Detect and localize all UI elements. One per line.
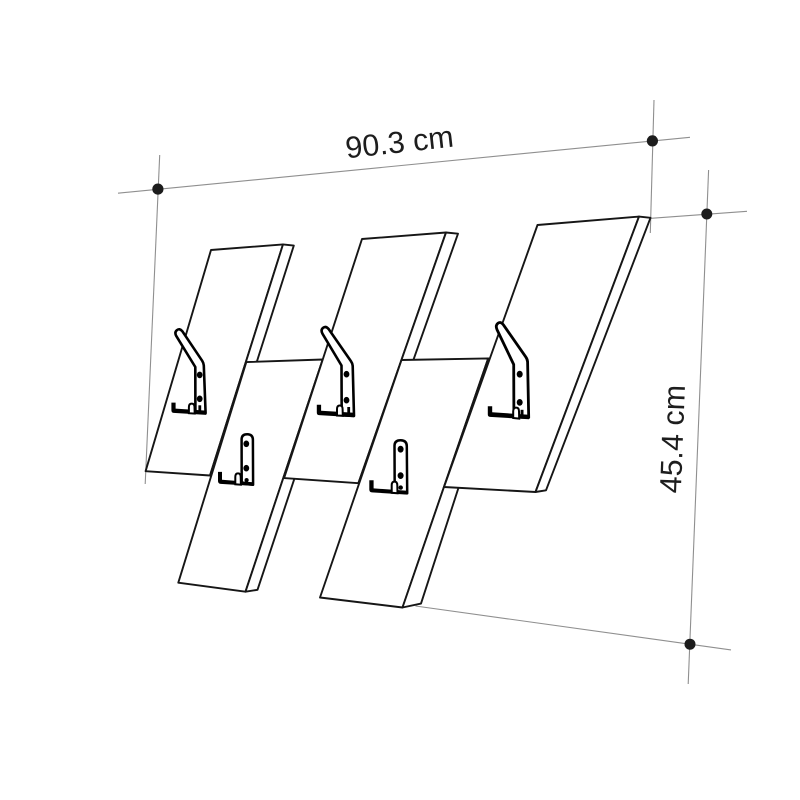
- svg-text:90.3 cm: 90.3 cm: [344, 120, 456, 166]
- svg-text:45.4 cm: 45.4 cm: [654, 384, 692, 494]
